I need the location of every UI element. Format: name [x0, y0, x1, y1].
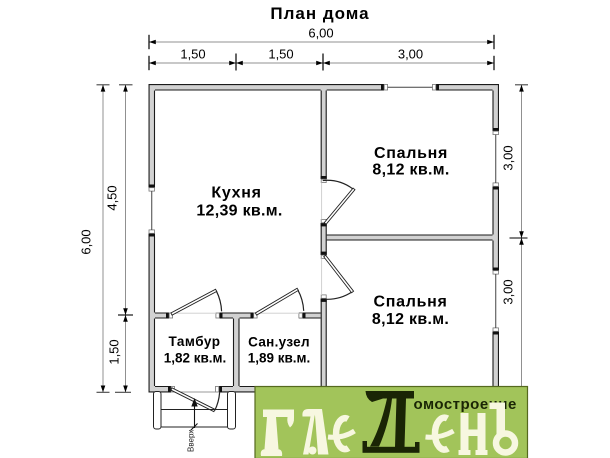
- svg-text:План дома: План дома: [270, 4, 369, 23]
- svg-text:Вверх: Вверх: [187, 430, 196, 452]
- svg-text:4,50: 4,50: [105, 185, 120, 210]
- svg-text:Спальня: Спальня: [374, 145, 448, 162]
- svg-text:6,00: 6,00: [308, 26, 333, 41]
- svg-text:1,50: 1,50: [268, 47, 293, 62]
- svg-text:12,39 кв.м.: 12,39 кв.м.: [196, 203, 282, 220]
- svg-text:3,00: 3,00: [501, 145, 516, 170]
- svg-text:Кухня: Кухня: [211, 185, 261, 202]
- svg-text:8,12 кв.м.: 8,12 кв.м.: [372, 311, 449, 328]
- svg-text:1,89 кв.м.: 1,89 кв.м.: [248, 351, 311, 366]
- svg-text:3,00: 3,00: [398, 47, 423, 62]
- svg-text:1,50: 1,50: [180, 47, 205, 62]
- svg-text:1,82 кв.м.: 1,82 кв.м.: [164, 351, 227, 366]
- svg-text:Спальня: Спальня: [373, 294, 447, 311]
- svg-text:Сан.узел: Сан.узел: [248, 335, 310, 350]
- svg-text:Тамбур: Тамбур: [169, 334, 221, 349]
- svg-text:8,12 кв.м.: 8,12 кв.м.: [372, 162, 449, 179]
- svg-text:3,00: 3,00: [501, 279, 516, 304]
- svg-text:6,00: 6,00: [79, 229, 94, 254]
- svg-text:1,50: 1,50: [107, 339, 122, 364]
